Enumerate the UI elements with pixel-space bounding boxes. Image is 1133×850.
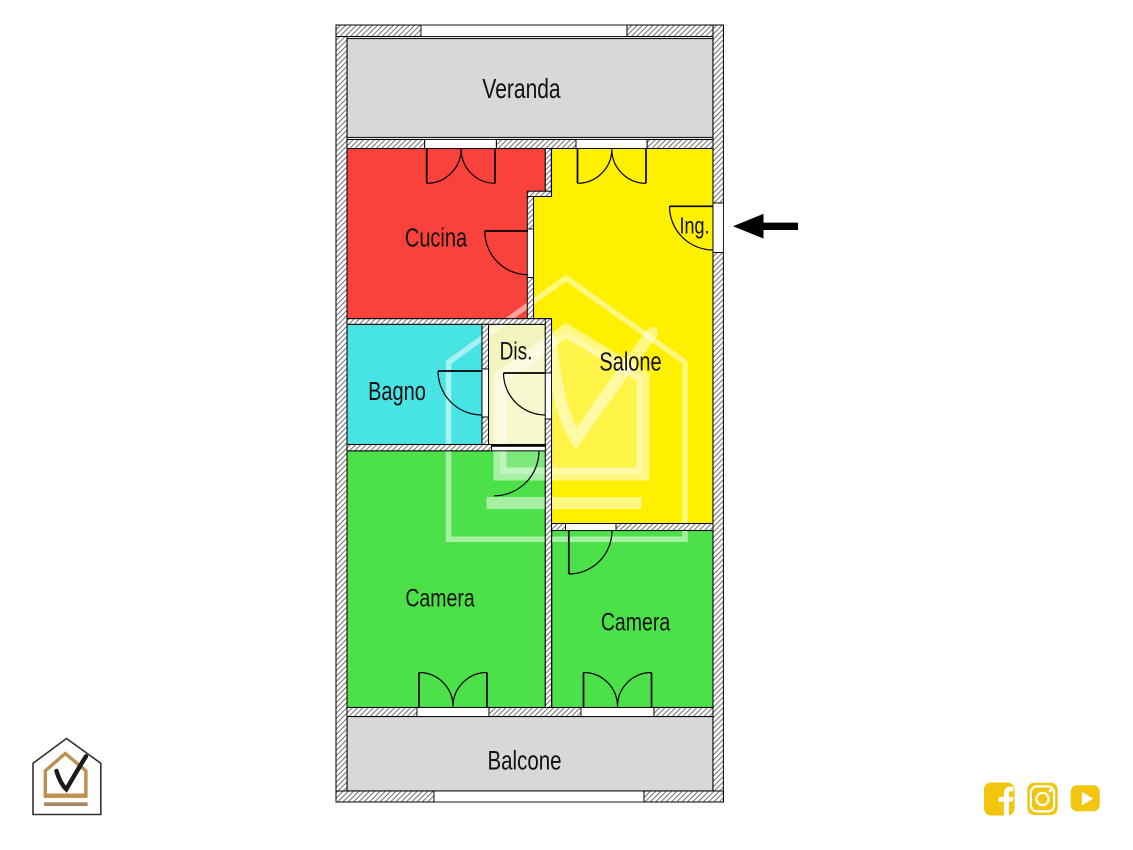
svg-text:Veranda: Veranda <box>482 74 561 104</box>
svg-text:Dis.: Dis. <box>500 337 533 365</box>
svg-text:Salone: Salone <box>599 347 661 376</box>
svg-text:Cucina: Cucina <box>405 223 467 252</box>
svg-text:Camera: Camera <box>601 608 671 636</box>
svg-text:Ing.: Ing. <box>679 213 709 239</box>
svg-text:Balcone: Balcone <box>487 746 561 776</box>
svg-text:Bagno: Bagno <box>368 376 426 405</box>
svg-text:Camera: Camera <box>405 584 475 612</box>
